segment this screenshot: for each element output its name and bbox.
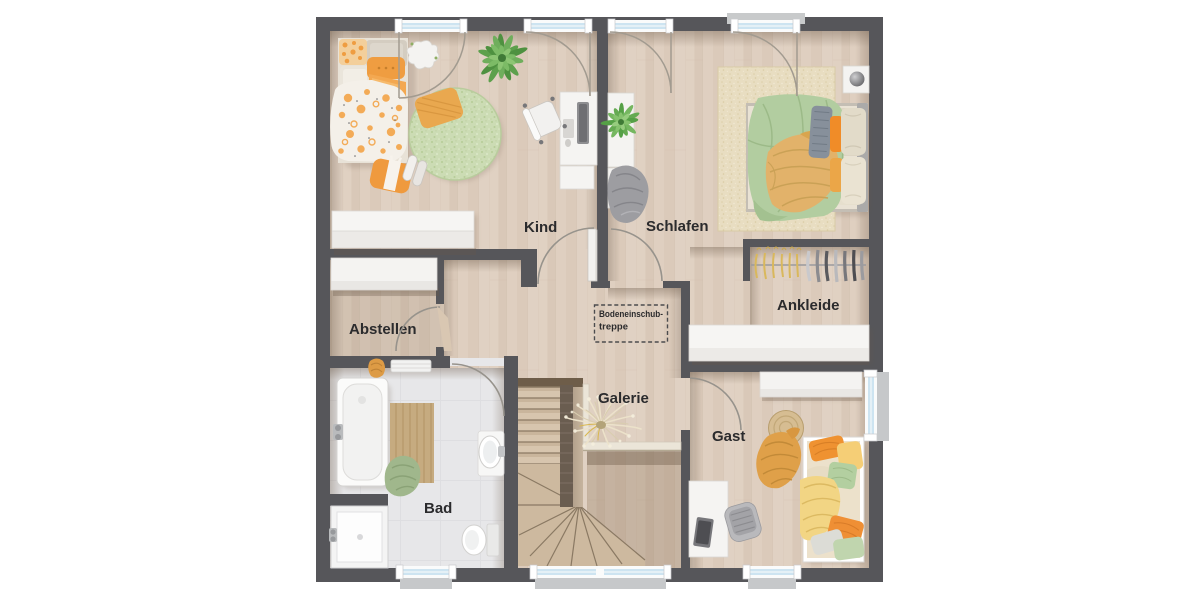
svg-text:treppe: treppe	[599, 322, 628, 333]
svg-text:Ankleide: Ankleide	[777, 297, 840, 314]
svg-text:Kind: Kind	[524, 219, 557, 236]
svg-text:Galerie: Galerie	[598, 390, 649, 407]
svg-text:Bad: Bad	[424, 500, 452, 517]
svg-text:Bodeneinschub-: Bodeneinschub-	[599, 309, 663, 320]
svg-text:Gast: Gast	[712, 428, 745, 445]
svg-text:Schlafen: Schlafen	[646, 218, 709, 235]
